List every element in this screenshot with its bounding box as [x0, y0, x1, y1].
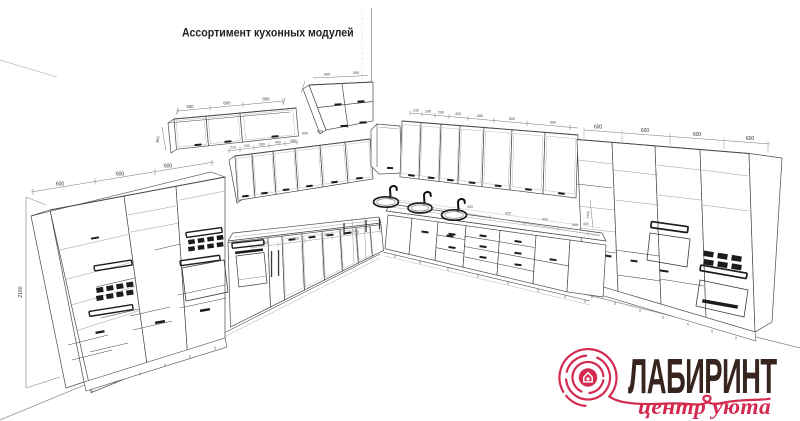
svg-text:450: 450: [467, 205, 473, 209]
svg-text:200: 200: [438, 111, 444, 115]
svg-text:Ассортимент кухонных модулей: Ассортимент кухонных модулей: [182, 27, 354, 40]
svg-text:550: 550: [505, 211, 511, 215]
svg-text:450: 450: [290, 139, 296, 143]
svg-text:450: 450: [477, 114, 483, 118]
svg-text:400: 400: [542, 218, 548, 222]
svg-text:300: 300: [353, 70, 360, 75]
svg-text:600: 600: [302, 132, 308, 136]
svg-text:600: 600: [746, 136, 755, 142]
svg-text:300: 300: [259, 142, 265, 146]
svg-text:800: 800: [293, 237, 299, 241]
svg-text:600: 600: [353, 229, 359, 233]
svg-text:600: 600: [594, 124, 603, 130]
svg-text:290: 290: [425, 110, 431, 114]
svg-text:400: 400: [275, 141, 281, 145]
svg-text:500: 500: [186, 104, 194, 109]
svg-text:800: 800: [550, 121, 556, 125]
svg-text:290: 290: [244, 144, 250, 148]
svg-text:2160: 2160: [18, 286, 24, 297]
svg-text:600: 600: [693, 132, 702, 138]
svg-text:800: 800: [509, 117, 515, 121]
svg-text:600: 600: [56, 181, 65, 187]
svg-text:546: 546: [572, 223, 578, 227]
svg-text:800: 800: [262, 97, 270, 102]
svg-text:600: 600: [164, 164, 173, 170]
svg-text:400: 400: [455, 112, 461, 116]
svg-text:646: 646: [583, 222, 589, 226]
svg-text:210: 210: [413, 109, 419, 113]
svg-text:210: 210: [230, 145, 236, 149]
svg-text:300: 300: [324, 72, 331, 77]
svg-text:800: 800: [317, 130, 323, 134]
svg-text:центр уюта: центр уюта: [638, 394, 771, 420]
svg-text:600: 600: [641, 128, 650, 134]
svg-text:600: 600: [223, 100, 231, 105]
svg-text:450: 450: [324, 233, 330, 237]
svg-text:600: 600: [116, 172, 125, 178]
